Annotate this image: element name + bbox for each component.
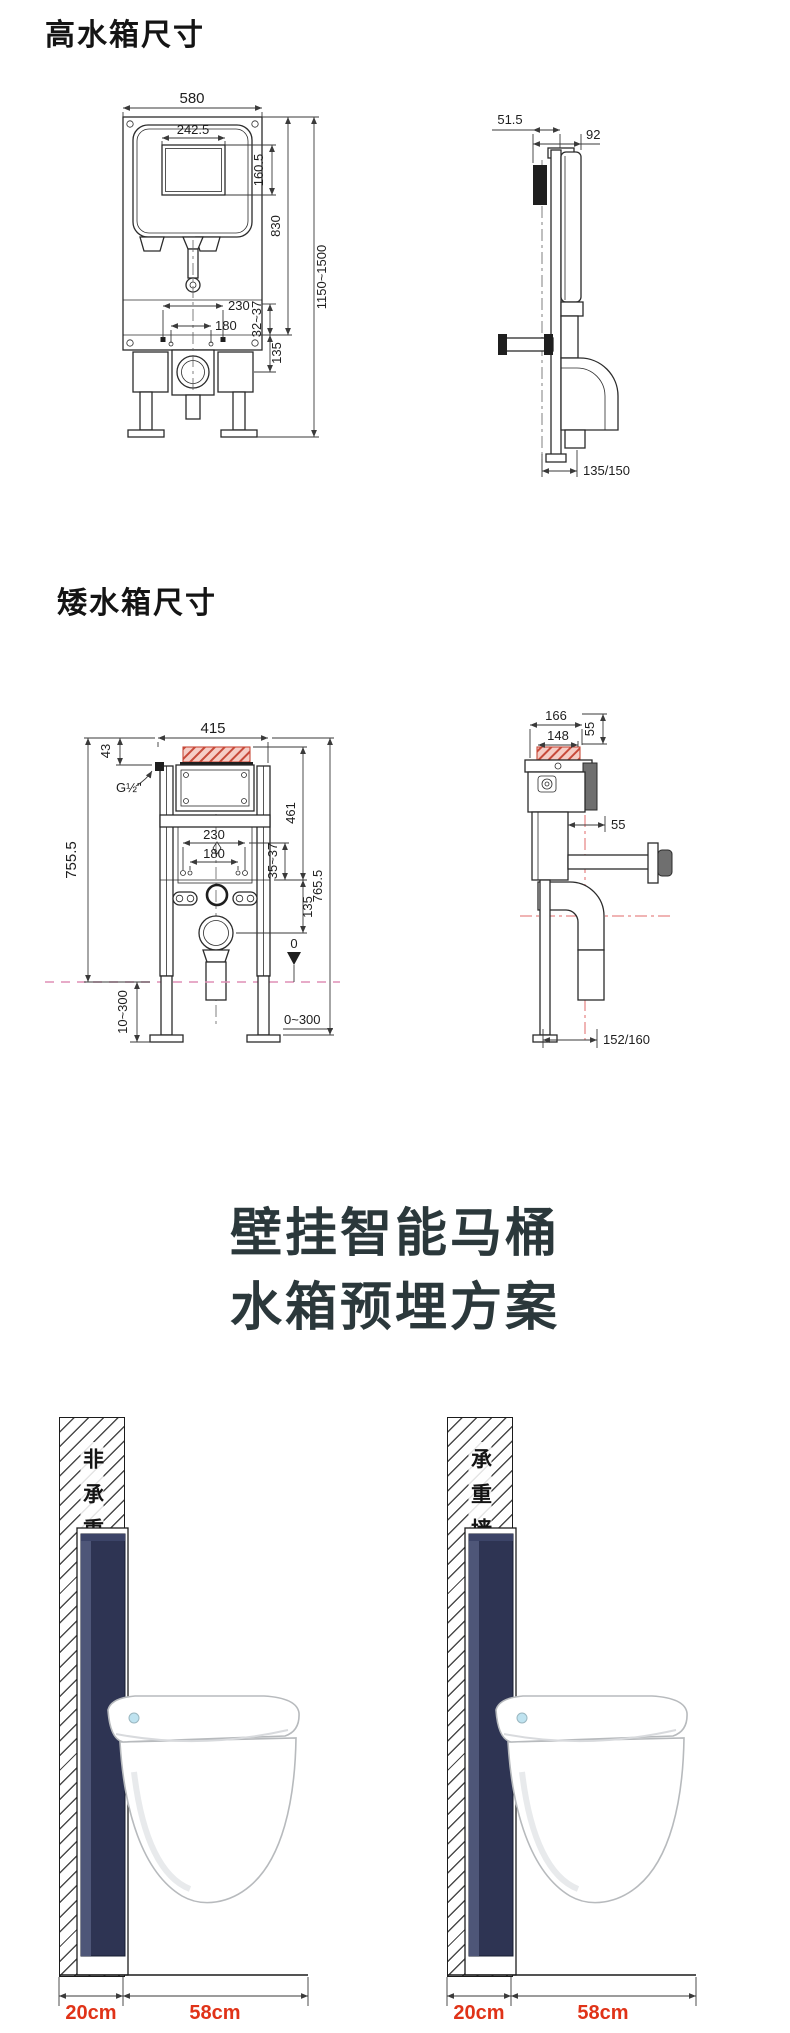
high-tank-section-title: 高水箱尺寸 <box>45 10 205 54</box>
low-tank-side-view: 166 148 55 55 152/160 <box>520 708 672 1048</box>
dim-frame-height: 830 <box>268 215 283 237</box>
dim-leg-adjust-right: 0~300 <box>284 1012 321 1027</box>
low-tank-technical-drawing: 415 43 G½" 230 180 35~37 461 135 765.5 7… <box>30 630 760 1110</box>
dim-adjust-range: 32~37 <box>249 301 264 338</box>
tank-top-red-cap <box>537 747 580 760</box>
dim-overall-width: 415 <box>200 720 225 737</box>
dim-drain-distance: 135/150 <box>583 463 630 478</box>
dim-depth-inner: 148 <box>547 728 569 743</box>
dim-bolt-spacing-inner: 180 <box>203 846 225 861</box>
dim-toilet-depth: 58cm <box>189 2002 240 2024</box>
dim-inlet-thread: G½" <box>116 780 142 795</box>
high-tank-side-view: 51.5 92 135/150 <box>492 112 630 478</box>
drain-elbow <box>561 358 618 430</box>
dim-wall-thickness: 20cm <box>65 2002 116 2024</box>
dim-height-right: 765.5 <box>310 870 325 903</box>
anchor-bolt-slots <box>173 892 257 905</box>
adjustable-legs <box>128 392 257 437</box>
water-supply-rod <box>568 843 672 883</box>
dim-rail-to-drain: 135 <box>269 342 284 364</box>
sensor-light <box>129 1713 139 1723</box>
dim-bolt-spacing-outer: 230 <box>203 827 225 842</box>
dim-window-height: 160.5 <box>251 154 266 187</box>
tank-top-red-cap <box>183 747 250 762</box>
sensor-light <box>517 1713 527 1723</box>
flush-valve <box>207 885 227 905</box>
wall-hung-smart-toilet <box>496 1696 687 1903</box>
dim-window-width: 242.5 <box>177 122 210 137</box>
dim-depth-outer: 166 <box>545 708 567 723</box>
dim-total-depth: 92 <box>586 127 600 142</box>
actuator-plate <box>533 165 547 205</box>
dim-toilet-depth: 58cm <box>577 2002 628 2024</box>
dim-datum-level: 0 <box>290 936 297 951</box>
left-scheme-illustration: 20cm 58cm <box>40 1510 315 2025</box>
dim-leg-adjust-left: 10~300 <box>115 990 130 1034</box>
dim-wall-thickness: 20cm <box>453 2002 504 2024</box>
drain-outlet <box>199 916 233 950</box>
dim-tank-height: 461 <box>283 802 298 824</box>
dim-rear-offset: 55 <box>611 817 625 832</box>
dim-front-depth: 51.5 <box>497 112 522 127</box>
dim-top-offset: 43 <box>98 744 113 758</box>
water-inlet <box>155 762 164 771</box>
dim-drain-distance: 152/160 <box>603 1032 650 1047</box>
datum-triangle <box>287 952 301 965</box>
product-detail-diagram-page: 高水箱尺寸 <box>0 0 790 2033</box>
dim-height-left: 755.5 <box>63 841 80 879</box>
high-tank-front-view: 580 242.5 160.5 830 1150~1500 32~37 135 … <box>123 90 329 437</box>
embed-plan-title-line1: 壁挂智能马桶 <box>0 1206 790 1263</box>
dim-adjust-range: 35~37 <box>265 843 280 880</box>
high-tank-technical-drawing: 580 242.5 160.5 830 1150~1500 32~37 135 … <box>40 60 740 490</box>
dim-install-height-range: 1150~1500 <box>314 245 329 309</box>
dim-overall-width: 580 <box>179 90 204 107</box>
wall-hung-smart-toilet <box>108 1696 299 1903</box>
dim-bolt-spacing-outer: 230 <box>228 298 250 313</box>
embed-plan-title-line2: 水箱预埋方案 <box>0 1280 790 1337</box>
low-tank-section-title: 矮水箱尺寸 <box>57 578 217 622</box>
dim-bolt-spacing-inner: 180 <box>215 318 237 333</box>
right-scheme-illustration: 20cm 58cm <box>428 1510 703 2025</box>
dim-cap-height: 55 <box>582 722 597 736</box>
low-tank-front-view: 415 43 G½" 230 180 35~37 461 135 765.5 7… <box>45 720 340 1042</box>
